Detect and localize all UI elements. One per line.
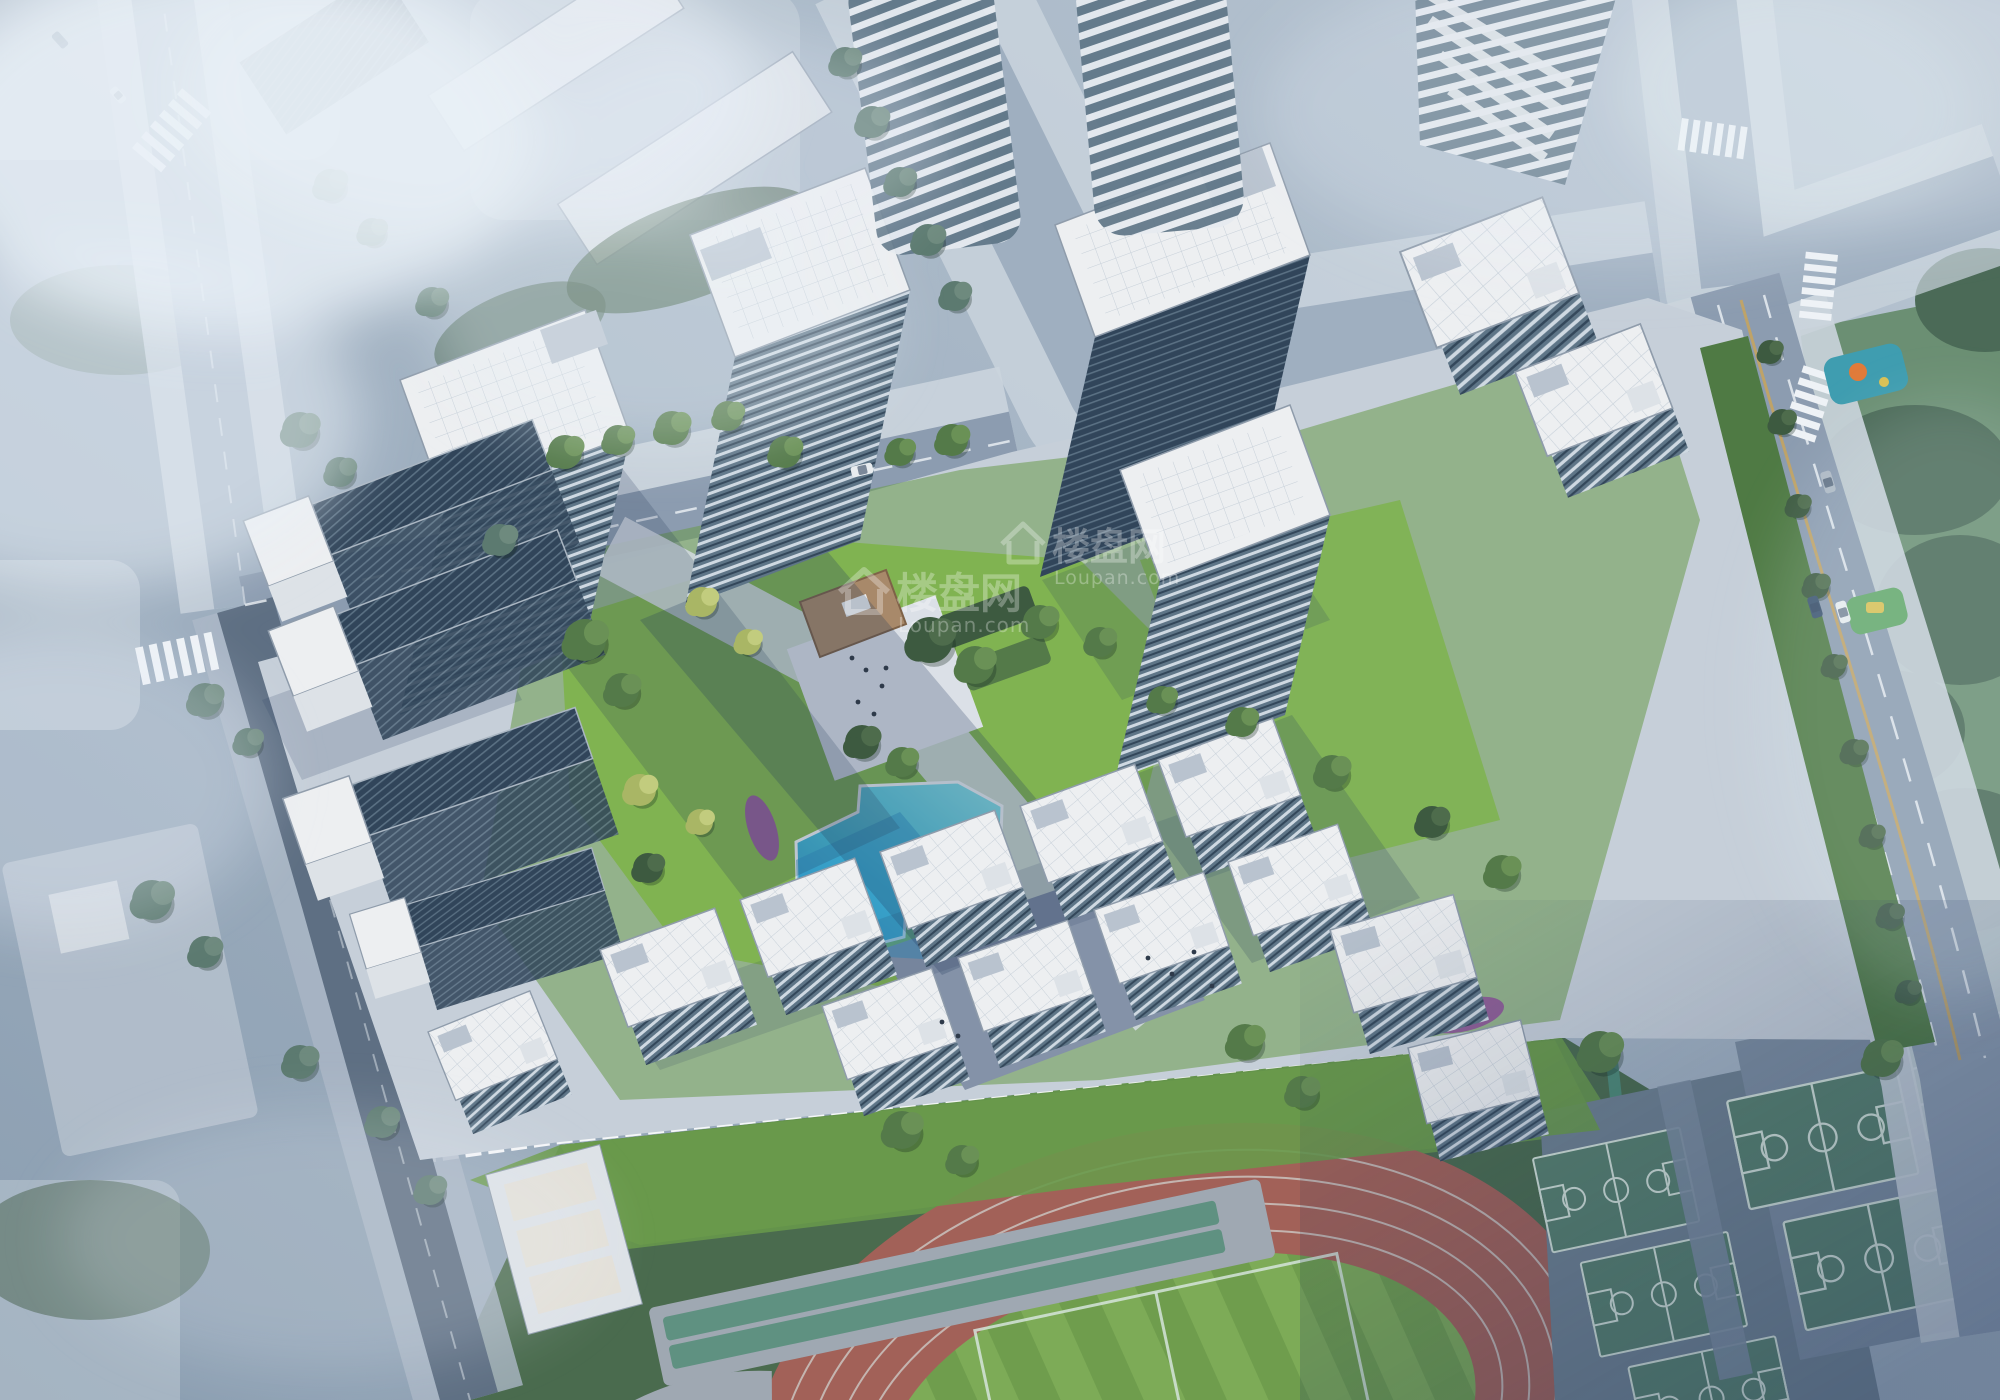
glass-tower-2 [1073,0,1246,238]
aerial-render: 楼盘网 Loupan.com 楼盘网 Loupan.com [0,0,2000,1400]
scene-canvas: 楼盘网 Loupan.com 楼盘网 Loupan.com [0,0,2000,1400]
watermark-text-cn: 楼盘网 [896,569,1022,618]
watermark-text-en: Loupan.com [1054,567,1180,589]
watermark-text-en: Loupan.com [898,613,1030,637]
watermark-text-cn: 楼盘网 [1052,525,1166,569]
